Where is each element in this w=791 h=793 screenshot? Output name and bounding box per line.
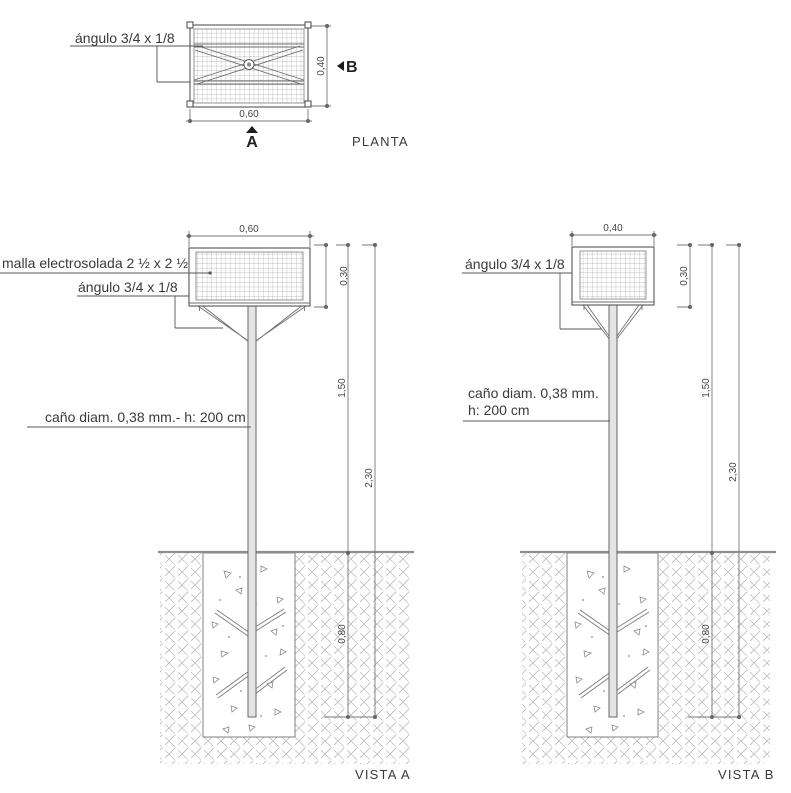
section-marker-b: B [337,59,358,76]
plan-angulo-label: ángulo 3/4 x 1/8 [75,30,175,46]
vista-b-view: 0,40 0,30 1,50 2,30 0,80 ángulo 3/4 x 1/… [462,223,776,782]
vista-a-width-dimension: 0,60 [186,224,314,247]
vista-b-clear-height-value: 1,50 [701,378,712,398]
vista-a-title: VISTA A [355,767,411,782]
plan-view: ángulo 3/4 x 1/8 0,60 0,40 B A PLANTA [70,22,409,151]
vista-a-mesh [196,252,303,300]
vista-a-malla-leader-dot [208,271,211,274]
vista-b-width-value: 0,40 [603,223,623,234]
vista-b-cano-label-line2: h: 200 cm [468,402,529,418]
plan-post-center [247,62,251,66]
vista-b-angulo-label: ángulo 3/4 x 1/8 [465,256,565,272]
vista-a-cano-label: caño diam. 0,38 mm.- h: 200 cm [45,409,246,425]
plan-title: PLANTA [352,134,409,149]
section-arrow-b-icon [337,61,344,71]
vista-a-angulo-label: ángulo 3/4 x 1/8 [78,279,178,295]
plan-depth-value: 0,40 [316,56,327,76]
vista-a-footing-depth-value: 0,80 [337,624,348,644]
vista-a-post [248,304,256,717]
section-arrow-a-icon [246,126,258,133]
plan-angulo-leader [70,46,203,82]
vista-b-total-height-value: 2,30 [728,462,739,482]
section-marker-a-label: A [246,134,258,151]
vista-a-malla-label: malla electrosolada 2 ½ x 2 ½ [2,255,188,271]
plan-width-value: 0,60 [239,109,259,120]
section-marker-b-label: B [346,59,358,76]
vista-a-view: 0,60 0,30 1,50 2,30 0,80 malla electroso… [0,224,414,782]
plan-depth-dimension: 0,40 [310,24,331,108]
vista-b-post [609,303,617,717]
vista-a-width-value: 0,60 [239,224,259,235]
vista-b-title: VISTA B [718,767,775,782]
plan-width-dimension: 0,60 [186,109,312,123]
vista-b-width-dimension: 0,40 [569,223,657,246]
vista-b-basket-height-value: 0,30 [679,266,690,286]
vista-b-cano-label-line1: caño diam. 0,38 mm. [468,385,599,401]
vista-b-footing-depth-value: 0,80 [701,624,712,644]
vista-b-mesh [580,251,646,299]
drawing-canvas: ángulo 3/4 x 1/8 0,60 0,40 B A PLANTA [0,0,791,793]
vista-a-clear-height-value: 1,50 [337,378,348,398]
vista-a-total-height-value: 2,30 [364,468,375,488]
section-marker-a: A [246,126,258,151]
technical-drawing-page: ángulo 3/4 x 1/8 0,60 0,40 B A PLANTA [0,0,791,793]
